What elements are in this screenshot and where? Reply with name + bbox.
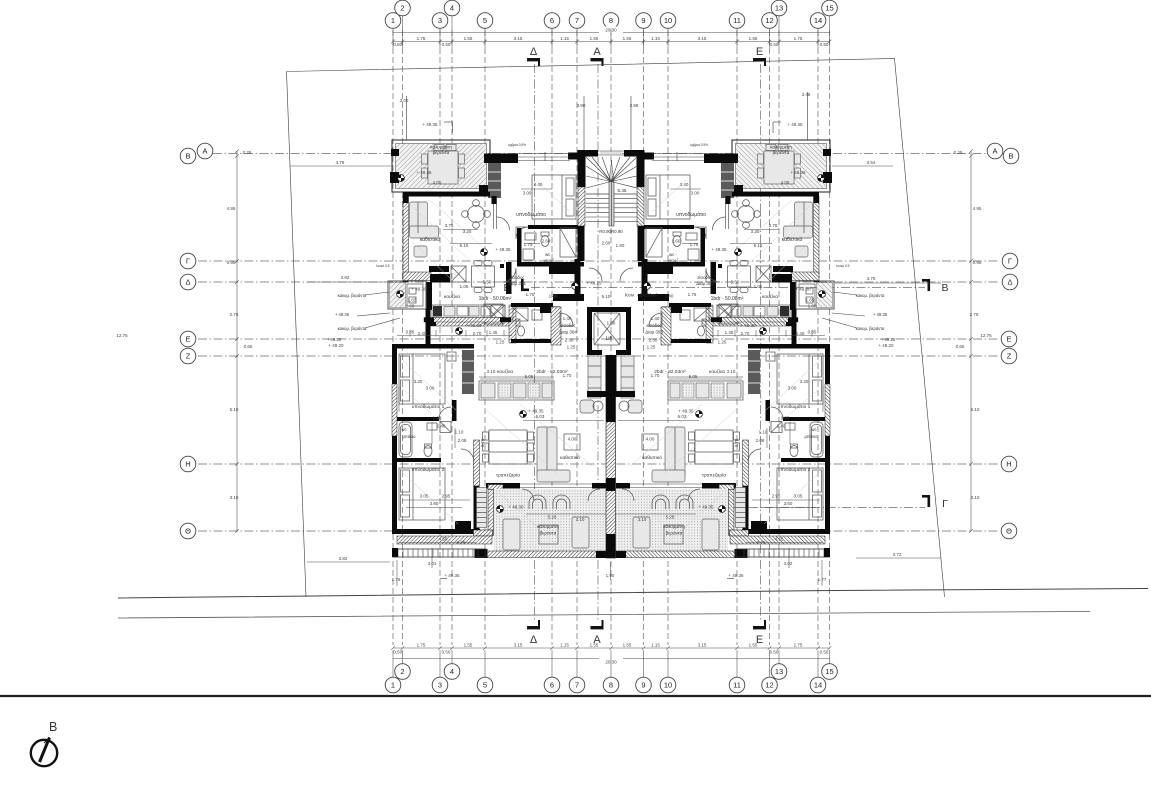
- svg-text:5: 5: [483, 681, 487, 690]
- svg-text:1.05: 1.05: [754, 284, 763, 289]
- svg-text:3.10: 3.10: [230, 495, 239, 500]
- svg-text:1: 1: [391, 16, 395, 25]
- svg-text:12.75: 12.75: [116, 333, 128, 338]
- svg-text:0.50: 0.50: [770, 42, 779, 47]
- svg-text:Β: Β: [1008, 152, 1013, 161]
- svg-text:υπνοδωμάτιο 1: υπνοδωμάτιο 1: [778, 403, 811, 410]
- svg-text:Γ: Γ: [942, 498, 948, 510]
- svg-text:Α: Α: [992, 147, 997, 156]
- svg-text:βεράντα: βεράντα: [433, 149, 450, 155]
- svg-text:υπνοδωμάτιο 1: υπνοδωμάτιο 1: [412, 403, 445, 410]
- svg-text:5.28: 5.28: [548, 515, 557, 520]
- svg-text:2.08: 2.08: [756, 438, 765, 443]
- svg-text:3.54: 3.54: [867, 160, 876, 165]
- svg-text:5.05: 5.05: [689, 374, 698, 379]
- svg-text:6.03: 6.03: [536, 414, 545, 419]
- svg-text:Ε: Ε: [185, 335, 190, 344]
- svg-text:λευκό 0.5: λευκό 0.5: [836, 264, 850, 268]
- svg-text:2.75: 2.75: [970, 312, 979, 317]
- svg-text:8: 8: [609, 16, 613, 25]
- svg-text:4: 4: [450, 667, 454, 676]
- svg-text:7: 7: [575, 681, 579, 690]
- svg-text:Θ: Θ: [185, 527, 191, 536]
- svg-text:+ 49.35: + 49.35: [422, 122, 438, 127]
- svg-text:0.65: 0.65: [244, 344, 253, 349]
- svg-text:1.40: 1.40: [665, 294, 674, 299]
- svg-text:Δ: Δ: [1007, 278, 1012, 287]
- svg-text:υπνοδωμάτιο: υπνοδωμάτιο: [676, 211, 706, 218]
- svg-text:3.15: 3.15: [698, 643, 707, 648]
- svg-text:Η: Η: [185, 460, 190, 469]
- svg-text:7: 7: [575, 16, 579, 25]
- svg-text:0.75: 0.75: [757, 540, 766, 545]
- svg-text:2.08: 2.08: [458, 438, 467, 443]
- svg-text:1.25: 1.25: [718, 340, 727, 345]
- svg-text:2.40: 2.40: [437, 424, 446, 429]
- svg-text:3.75: 3.75: [867, 276, 876, 281]
- svg-text:R0.90R0.90: R0.90R0.90: [599, 229, 623, 234]
- svg-text:Ζ: Ζ: [186, 352, 191, 361]
- svg-text:1.40: 1.40: [549, 294, 558, 299]
- svg-text:Δ: Δ: [185, 278, 190, 287]
- svg-text:1.77: 1.77: [818, 577, 827, 582]
- svg-text:4.00: 4.00: [646, 437, 655, 442]
- svg-text:τραπεζαρία: τραπεζαρία: [496, 473, 520, 479]
- svg-text:καθιστικό: καθιστικό: [560, 454, 580, 461]
- svg-text:όμβρια 0.5%: όμβρια 0.5%: [690, 143, 708, 147]
- svg-text:6: 6: [550, 681, 554, 690]
- svg-text:5.35: 5.35: [618, 188, 627, 193]
- svg-text:1.80: 1.80: [616, 243, 625, 248]
- svg-text:3: 3: [438, 681, 442, 690]
- svg-text:0.75: 0.75: [457, 540, 466, 545]
- svg-text:1.40: 1.40: [651, 316, 660, 321]
- svg-text:3.15: 3.15: [514, 36, 523, 41]
- svg-text:11: 11: [733, 16, 741, 25]
- svg-text:1.70: 1.70: [651, 373, 660, 378]
- svg-text:+ 49.36: + 49.36: [790, 170, 806, 175]
- svg-text:3.70: 3.70: [480, 438, 485, 447]
- svg-text:1.10: 1.10: [759, 430, 768, 435]
- svg-text:1.70: 1.70: [563, 373, 572, 378]
- svg-text:1.25: 1.25: [647, 345, 656, 350]
- svg-text:3.20: 3.20: [463, 229, 472, 234]
- svg-text:+ 49.30: + 49.30: [466, 323, 482, 328]
- svg-text:Διαμ 301: Διαμ 301: [508, 281, 526, 286]
- svg-text:1.75: 1.75: [690, 242, 699, 247]
- svg-text:1.60: 1.60: [406, 304, 415, 309]
- svg-text:Β: Β: [185, 152, 190, 161]
- svg-text:1.55: 1.55: [749, 36, 758, 41]
- svg-text:+ 49.20: + 49.20: [878, 343, 894, 348]
- svg-text:4: 4: [450, 4, 454, 13]
- svg-text:0.85: 0.85: [406, 330, 415, 335]
- svg-text:3.00: 3.00: [400, 98, 409, 103]
- svg-text:2.70: 2.70: [741, 331, 750, 336]
- svg-text:1.75: 1.75: [688, 292, 697, 297]
- svg-text:4.95: 4.95: [227, 206, 236, 211]
- svg-text:1.90: 1.90: [606, 573, 615, 578]
- svg-text:Η: Η: [1006, 460, 1011, 469]
- svg-text:wc -: wc -: [669, 252, 678, 257]
- svg-text:3.02: 3.02: [784, 561, 793, 566]
- svg-text:+ 49.35: + 49.35: [787, 122, 803, 127]
- svg-text:1.75: 1.75: [417, 643, 426, 648]
- svg-text:όμβρια 0.5%: όμβρια 0.5%: [508, 143, 526, 147]
- svg-text:+ 49.30: + 49.30: [508, 505, 524, 510]
- svg-text:υπνοδωμάτιο 2: υπνοδωμάτιο 2: [412, 466, 445, 473]
- svg-text:Ε: Ε: [756, 634, 763, 646]
- svg-text:τραπεζαρία: τραπεζαρία: [702, 473, 726, 479]
- svg-text:0.25: 0.25: [243, 150, 252, 155]
- svg-text:1.45: 1.45: [725, 330, 734, 335]
- svg-text:3.05: 3.05: [794, 494, 803, 499]
- svg-text:0.95: 0.95: [973, 260, 982, 265]
- svg-text:3.40: 3.40: [680, 182, 689, 187]
- svg-text:+ 49.25: + 49.25: [586, 281, 602, 286]
- svg-text:καλυμμένη: καλυμμένη: [430, 144, 452, 150]
- svg-text:3.00: 3.00: [523, 191, 532, 196]
- svg-text:1.15: 1.15: [560, 36, 569, 41]
- svg-text:1.60: 1.60: [607, 321, 616, 326]
- svg-text:3.10: 3.10: [487, 369, 496, 374]
- svg-text:κακυμ. βεράντα: κακυμ. βεράντα: [856, 293, 885, 298]
- svg-text:υπνοδωμάτιο 2: υπνοδωμάτιο 2: [778, 466, 811, 473]
- svg-text:μπάνιο: μπάνιο: [402, 434, 416, 439]
- svg-text:1.60: 1.60: [808, 304, 817, 309]
- svg-text:3.01: 3.01: [428, 561, 437, 566]
- svg-text:5: 5: [483, 16, 487, 25]
- svg-text:0.50: 0.50: [393, 650, 402, 655]
- svg-text:3.05: 3.05: [420, 494, 429, 499]
- svg-text:5.05: 5.05: [525, 374, 534, 379]
- svg-text:Θ: Θ: [1006, 527, 1012, 536]
- svg-text:0.95: 0.95: [227, 260, 236, 265]
- svg-text:Β: Β: [941, 282, 948, 294]
- svg-text:3.10: 3.10: [727, 369, 736, 374]
- svg-text:12: 12: [765, 16, 773, 25]
- svg-text:Διαμ 303: Διαμ 303: [645, 330, 663, 335]
- svg-text:12.75: 12.75: [980, 333, 992, 338]
- svg-text:5.15: 5.15: [754, 243, 763, 248]
- svg-text:Διαμ 302: Διαμ 302: [696, 281, 714, 286]
- svg-text:+ 49.35: + 49.35: [698, 505, 714, 510]
- svg-text:4.05: 4.05: [781, 180, 790, 185]
- svg-text:κακυμ. βεράντα: κακυμ. βεράντα: [856, 326, 885, 331]
- svg-text:6.03: 6.03: [678, 414, 687, 419]
- svg-text:+ 49.30: + 49.30: [411, 287, 427, 292]
- svg-text:ντουζ: ντουζ: [668, 258, 679, 263]
- svg-text:Δ: Δ: [530, 46, 538, 58]
- svg-text:0.50: 0.50: [770, 650, 779, 655]
- svg-text:3.10: 3.10: [576, 517, 585, 522]
- svg-text:Α: Α: [593, 634, 601, 646]
- svg-text:καθιστικό: καθιστικό: [782, 236, 803, 243]
- svg-text:3.90: 3.90: [577, 103, 586, 108]
- svg-text:1.25: 1.25: [496, 340, 505, 345]
- svg-text:καθιστικό: καθιστικό: [642, 454, 662, 461]
- svg-text:3.15: 3.15: [698, 36, 707, 41]
- svg-text:Κοιν. - 24.39m²: Κοιν. - 24.39m²: [625, 293, 658, 299]
- svg-text:3.00: 3.00: [426, 386, 435, 391]
- svg-text:βεράντα: βεράντα: [666, 530, 683, 536]
- svg-text:0.50: 0.50: [393, 42, 402, 47]
- svg-text:0.50: 0.50: [442, 42, 451, 47]
- svg-text:1.65: 1.65: [806, 298, 815, 303]
- svg-text:κουζίνα: κουζίνα: [444, 294, 460, 300]
- svg-text:4.55: 4.55: [439, 537, 448, 542]
- svg-text:κακυμ. βεράντα: κακυμ. βεράντα: [338, 326, 367, 331]
- svg-text:2.95: 2.95: [772, 494, 781, 499]
- svg-text:3.20: 3.20: [800, 379, 809, 384]
- svg-text:+ 49.35: + 49.35: [495, 247, 511, 252]
- svg-text:1.75: 1.75: [417, 36, 426, 41]
- svg-text:3.75: 3.75: [769, 223, 778, 228]
- svg-text:wc: wc: [811, 427, 816, 432]
- svg-text:2.70: 2.70: [473, 331, 482, 336]
- svg-text:καθιστικό: καθιστικό: [420, 236, 441, 243]
- svg-text:0.50: 0.50: [820, 650, 829, 655]
- svg-text:Γ: Γ: [186, 257, 190, 266]
- svg-text:1.15: 1.15: [651, 36, 660, 41]
- svg-text:10: 10: [664, 16, 672, 25]
- svg-text:1.55: 1.55: [464, 643, 473, 648]
- svg-text:1.76: 1.76: [392, 577, 401, 582]
- svg-text:είσοδος: είσοδος: [560, 323, 575, 328]
- svg-text:2.40: 2.40: [418, 331, 427, 336]
- svg-text:1.55: 1.55: [464, 36, 473, 41]
- svg-text:3.10: 3.10: [638, 517, 647, 522]
- svg-text:wc -: wc -: [545, 252, 554, 257]
- svg-text:4.05: 4.05: [433, 180, 442, 185]
- svg-text:1bdr - 50.08m²: 1bdr - 50.08m²: [711, 296, 744, 302]
- svg-text:+ 49.36: + 49.36: [728, 573, 744, 578]
- svg-text:3.15: 3.15: [514, 643, 523, 648]
- svg-text:Γ: Γ: [1008, 257, 1012, 266]
- svg-text:2.40: 2.40: [777, 424, 786, 429]
- svg-text:ντουζ: ντουζ: [544, 258, 555, 263]
- svg-text:λευκό 0.5: λευκό 0.5: [376, 264, 390, 268]
- svg-text:+ 49.35: + 49.35: [711, 247, 727, 252]
- svg-text:3.10: 3.10: [971, 495, 980, 500]
- svg-text:1.55: 1.55: [623, 36, 632, 41]
- svg-text:καλυμμένη: καλυμμένη: [663, 523, 685, 529]
- svg-text:Ε: Ε: [1006, 335, 1011, 344]
- svg-text:Ε: Ε: [756, 46, 763, 58]
- svg-text:+ 49.25: + 49.25: [327, 337, 342, 342]
- svg-text:1.40: 1.40: [563, 316, 572, 321]
- svg-text:+ 49.36: + 49.36: [416, 170, 432, 175]
- svg-text:+ 49.35: + 49.35: [873, 312, 888, 317]
- svg-text:+ 49.30: + 49.30: [795, 287, 811, 292]
- svg-text:15: 15: [825, 667, 833, 676]
- svg-text:καλυμμένη: καλυμμένη: [770, 144, 792, 150]
- svg-text:14: 14: [814, 16, 822, 25]
- svg-text:1.95: 1.95: [433, 416, 442, 421]
- svg-text:+ 49.20: + 49.20: [328, 343, 344, 348]
- svg-text:2.60: 2.60: [672, 239, 681, 244]
- svg-text:3.20: 3.20: [414, 379, 423, 384]
- svg-text:0.25: 0.25: [954, 150, 963, 155]
- svg-text:2.30: 2.30: [649, 338, 658, 343]
- svg-text:3.72: 3.72: [893, 552, 902, 557]
- svg-text:1.75: 1.75: [524, 242, 533, 247]
- svg-text:5.10: 5.10: [602, 294, 611, 299]
- svg-text:κουζίνα: κουζίνα: [762, 294, 778, 300]
- svg-text:13: 13: [775, 4, 783, 13]
- svg-text:0.65: 0.65: [956, 344, 965, 349]
- svg-text:0.50: 0.50: [442, 650, 451, 655]
- svg-text:+ 49.35: + 49.35: [678, 409, 694, 414]
- svg-text:1.55: 1.55: [623, 643, 632, 648]
- svg-text:3.40: 3.40: [534, 182, 543, 187]
- svg-text:Β: Β: [49, 720, 57, 734]
- svg-text:4.95: 4.95: [973, 206, 982, 211]
- svg-text:2.40: 2.40: [796, 331, 805, 336]
- svg-text:10: 10: [664, 681, 672, 690]
- svg-text:1.65: 1.65: [408, 298, 417, 303]
- svg-text:0.50: 0.50: [820, 42, 829, 47]
- svg-text:κουζίνα: κουζίνα: [709, 369, 725, 375]
- svg-text:υπνοδωμάτιο: υπνοδωμάτιο: [516, 211, 546, 218]
- svg-text:1.75: 1.75: [794, 643, 803, 648]
- svg-text:1.05: 1.05: [460, 284, 469, 289]
- svg-text:Α: Α: [202, 147, 207, 156]
- svg-text:Α: Α: [593, 46, 601, 58]
- svg-text:5.50: 5.50: [731, 280, 740, 285]
- svg-text:κουζίνα: κουζίνα: [497, 369, 513, 375]
- svg-text:0.85: 0.85: [808, 330, 817, 335]
- svg-text:+ 49.35: + 49.35: [444, 573, 460, 578]
- svg-text:3.60: 3.60: [784, 501, 793, 506]
- svg-text:1.25: 1.25: [567, 345, 576, 350]
- svg-text:4.55: 4.55: [775, 537, 784, 542]
- svg-text:5.15: 5.15: [460, 243, 469, 248]
- svg-text:1.95: 1.95: [781, 416, 790, 421]
- svg-text:είσοδος: είσοδος: [646, 323, 661, 328]
- svg-text:8: 8: [609, 681, 613, 690]
- svg-text:4.00: 4.00: [568, 437, 577, 442]
- svg-text:+ 49.35: + 49.35: [528, 409, 544, 414]
- svg-text:βεράντα: βεράντα: [540, 530, 557, 536]
- svg-text:5.10: 5.10: [971, 407, 980, 412]
- svg-text:2.60: 2.60: [602, 241, 611, 246]
- svg-text:μπάνιο: μπάνιο: [804, 434, 818, 439]
- svg-text:2.30: 2.30: [565, 338, 574, 343]
- svg-text:Ζ: Ζ: [1007, 352, 1012, 361]
- svg-text:Διαμ 304: Διαμ 304: [559, 330, 577, 335]
- svg-text:2.95: 2.95: [442, 494, 451, 499]
- svg-text:4.78: 4.78: [336, 160, 345, 165]
- svg-text:είσοδος: είσοδος: [697, 275, 712, 280]
- svg-text:1.10: 1.10: [455, 430, 464, 435]
- svg-text:3.98: 3.98: [630, 103, 639, 108]
- svg-text:2.75: 2.75: [230, 312, 239, 317]
- svg-text:3.60: 3.60: [430, 501, 439, 506]
- svg-text:είσοδος: είσοδος: [509, 275, 524, 280]
- svg-text:15: 15: [825, 4, 833, 13]
- svg-text:3.75: 3.75: [445, 223, 454, 228]
- svg-text:1.75: 1.75: [526, 292, 535, 297]
- svg-text:9: 9: [641, 16, 645, 25]
- svg-text:wc: wc: [401, 427, 406, 432]
- svg-text:12: 12: [765, 681, 773, 690]
- svg-text:1.15: 1.15: [651, 643, 660, 648]
- svg-text:2.60: 2.60: [542, 239, 551, 244]
- svg-text:11: 11: [733, 681, 741, 690]
- svg-text:1.45: 1.45: [489, 330, 498, 335]
- svg-text:1.15: 1.15: [560, 643, 569, 648]
- svg-text:3.70: 3.70: [734, 438, 739, 447]
- svg-text:+ 49.35: + 49.35: [335, 312, 350, 317]
- svg-text:1.55: 1.55: [590, 36, 599, 41]
- svg-text:κακυμ. βεράντα: κακυμ. βεράντα: [338, 293, 367, 298]
- svg-text:καλυμμένη: καλυμμένη: [537, 523, 559, 529]
- svg-text:5.10: 5.10: [230, 407, 239, 412]
- svg-text:1: 1: [391, 681, 395, 690]
- svg-text:3.00: 3.00: [788, 386, 797, 391]
- svg-text:2: 2: [400, 4, 404, 13]
- svg-text:βεράντα: βεράντα: [773, 149, 790, 155]
- svg-text:3.82: 3.82: [339, 556, 348, 561]
- svg-text:Δ: Δ: [530, 634, 538, 646]
- svg-text:5.28: 5.28: [666, 515, 675, 520]
- svg-text:3.00: 3.00: [691, 191, 700, 196]
- svg-text:14: 14: [814, 681, 822, 690]
- svg-text:1.75: 1.75: [794, 36, 803, 41]
- svg-text:3.82: 3.82: [341, 275, 350, 280]
- svg-text:Lift: Lift: [606, 336, 613, 342]
- svg-text:9: 9: [641, 681, 645, 690]
- svg-text:5.50: 5.50: [483, 280, 492, 285]
- svg-text:3.48: 3.48: [802, 92, 811, 97]
- svg-text:2: 2: [400, 667, 404, 676]
- svg-text:3: 3: [438, 16, 442, 25]
- svg-text:6: 6: [550, 16, 554, 25]
- svg-text:3.20: 3.20: [751, 229, 760, 234]
- svg-text:13: 13: [775, 667, 783, 676]
- svg-text:+ 49.30: + 49.30: [740, 323, 756, 328]
- svg-text:1bdr - 50.06m²: 1bdr - 50.06m²: [479, 296, 512, 302]
- svg-text:+ 49.25: + 49.25: [881, 337, 896, 342]
